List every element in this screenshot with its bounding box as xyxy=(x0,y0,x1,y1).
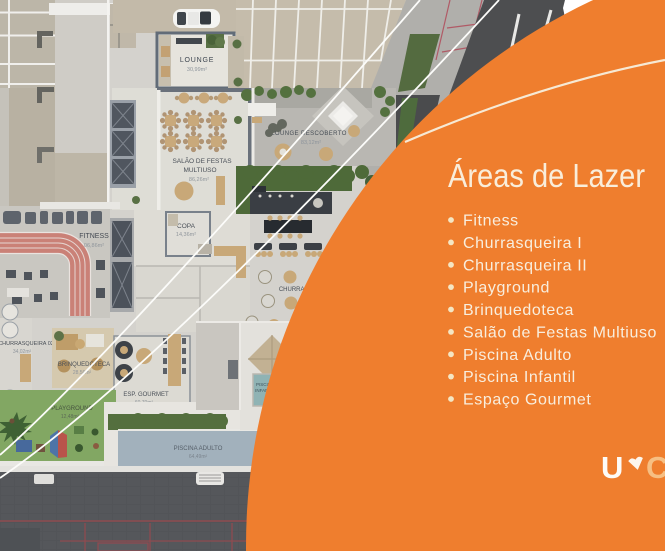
svg-text:Playground: Playground xyxy=(463,280,550,297)
svg-text:SALÃO DE FESTAS: SALÃO DE FESTAS xyxy=(172,156,232,165)
svg-text:MULTIUSO: MULTIUSO xyxy=(183,167,216,174)
svg-text:Espaço Gourmet: Espaço Gourmet xyxy=(463,392,591,409)
svg-text:83,12m²: 83,12m² xyxy=(301,140,321,146)
svg-text:Piscina Adulto: Piscina Adulto xyxy=(463,347,572,364)
svg-text:Churrasqueira I: Churrasqueira I xyxy=(463,235,582,252)
svg-text:14,36m²: 14,36m² xyxy=(176,232,196,238)
svg-text:LOUNGE DESCOBERTO: LOUNGE DESCOBERTO xyxy=(271,131,347,137)
svg-text:64,49m²: 64,49m² xyxy=(189,454,208,460)
svg-text:Áreas de Lazer: Áreas de Lazer xyxy=(448,157,645,194)
svg-text:LOUNGE: LOUNGE xyxy=(180,57,214,64)
svg-text:COPA: COPA xyxy=(177,223,196,230)
svg-text:06,86m²: 06,86m² xyxy=(84,243,104,249)
svg-text:ESP. GOURMET: ESP. GOURMET xyxy=(123,392,169,398)
svg-text:BRINQUEDOTECA: BRINQUEDOTECA xyxy=(58,362,110,368)
svg-text:Brinquedoteca: Brinquedoteca xyxy=(463,302,574,319)
svg-text:86,26m²: 86,26m² xyxy=(189,177,209,183)
svg-text:Fitness: Fitness xyxy=(463,213,519,230)
svg-text:C: C xyxy=(646,450,665,485)
svg-text:FITNESS: FITNESS xyxy=(79,233,109,240)
svg-text:U: U xyxy=(601,450,623,485)
svg-text:34,02m²: 34,02m² xyxy=(13,349,32,355)
svg-text:PISCINA ADULTO: PISCINA ADULTO xyxy=(174,446,223,452)
svg-text:CHURRASQUEIRA 02: CHURRASQUEIRA 02 xyxy=(0,341,54,347)
svg-text:30,99m²: 30,99m² xyxy=(187,67,207,73)
svg-text:Churrasqueira II: Churrasqueira II xyxy=(463,257,587,274)
svg-text:Salão de Festas Multiuso: Salão de Festas Multiuso xyxy=(463,324,657,341)
svg-text:Piscina Infantil: Piscina Infantil xyxy=(463,369,576,386)
